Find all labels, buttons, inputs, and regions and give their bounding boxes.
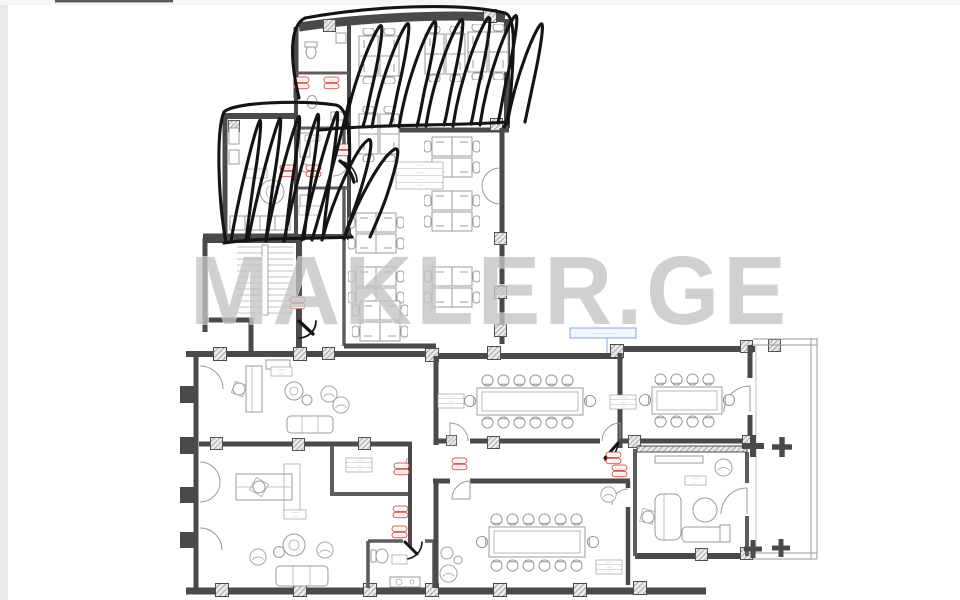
svg-text:·····: ·····	[617, 472, 622, 476]
svg-text:······: ······	[416, 177, 422, 181]
svg-text:·····: ·····	[340, 145, 345, 149]
photo-artifact-line	[55, 0, 173, 2]
svg-text:· ···· ····· ···· · ·····: · ···· ····· ···· · ·····	[590, 332, 617, 336]
svg-text:·····: ·····	[606, 565, 611, 569]
svg-text:·····: ·····	[285, 172, 290, 176]
svg-text:·····: ·····	[448, 399, 453, 403]
room-label-office-left: ······· ··.··	[284, 510, 306, 519]
svg-text:·····: ·····	[285, 166, 290, 170]
svg-text:·····: ·····	[398, 513, 403, 517]
svg-text:··.·: ··.·	[607, 570, 611, 574]
svg-text:·····: ·····	[356, 463, 361, 467]
svg-text:···.··: ···.··	[416, 184, 422, 188]
svg-text:··.·: ··.·	[621, 405, 625, 409]
svg-text:········: ········	[415, 164, 423, 168]
floor-plan-svg: ········ ········ ······ ···.·· ······· …	[0, 0, 960, 600]
svg-text:··.··: ··.··	[279, 372, 284, 376]
svg-text:·········: ·········	[446, 395, 455, 399]
svg-text:·····: ·····	[299, 84, 304, 88]
svg-text:·········: ·········	[604, 561, 613, 565]
svg-text:·.··: ·.··	[397, 560, 401, 564]
svg-text:·····: ·····	[617, 466, 622, 470]
svg-text:·····: ·····	[340, 151, 345, 155]
room-label-conference-1: ········· ····· ··.·	[438, 394, 464, 408]
room-label-closet: ········ ····· ·.··	[346, 458, 372, 472]
svg-text:·····: ·····	[611, 459, 616, 463]
watermark: MAKLER.GE	[190, 236, 790, 345]
svg-text:·········: ·········	[618, 396, 627, 400]
svg-text:·····: ·····	[299, 78, 304, 82]
svg-text:·····: ·····	[457, 465, 462, 469]
room-label-wc: ··· ·.··	[392, 555, 407, 564]
svg-text:·.··: ·.··	[693, 481, 697, 485]
room-label-central-office: ········ ········ ······ ···.··	[396, 162, 443, 189]
svg-text:·····: ·····	[399, 470, 404, 474]
svg-text:·····: ·····	[329, 84, 334, 88]
svg-text:·.··: ·.··	[357, 468, 361, 472]
floor-plan-photo: ········ ········ ······ ···.·· ······· …	[0, 0, 960, 600]
svg-text:·····: ·····	[399, 464, 404, 468]
svg-text:·····: ·····	[611, 453, 616, 457]
svg-text:········: ········	[415, 171, 423, 175]
svg-text:·····: ·····	[329, 78, 334, 82]
svg-text:·····: ·····	[398, 507, 403, 511]
svg-text:··.··: ··.··	[292, 515, 297, 519]
room-label-reception: ······ ··.··	[271, 367, 292, 376]
svg-text:··.·: ··.·	[449, 404, 453, 408]
svg-text:·····: ·····	[620, 400, 625, 404]
room-label-conference-2: ········· ····· ··.·	[610, 395, 636, 409]
svg-text:·····: ·····	[397, 533, 402, 537]
svg-text:·····: ·····	[397, 527, 402, 531]
room-label-office-right: ······ ·.··	[685, 476, 706, 485]
svg-text:·····: ·····	[457, 459, 462, 463]
photo-edge-left	[0, 0, 8, 600]
svg-text:········: ········	[355, 459, 363, 463]
room-label-conference-3: ········· ····· ··.·	[596, 560, 622, 574]
